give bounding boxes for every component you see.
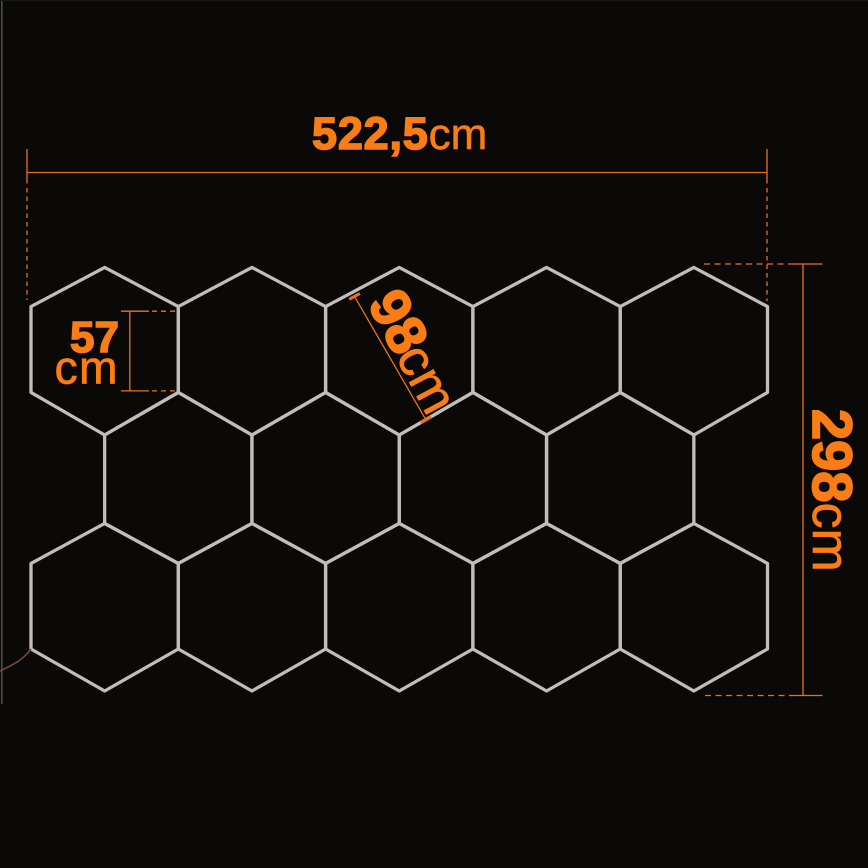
- svg-text:298cm: 298cm: [801, 409, 864, 572]
- svg-text:522,5cm: 522,5cm: [312, 108, 487, 159]
- svg-text:cm: cm: [55, 342, 119, 394]
